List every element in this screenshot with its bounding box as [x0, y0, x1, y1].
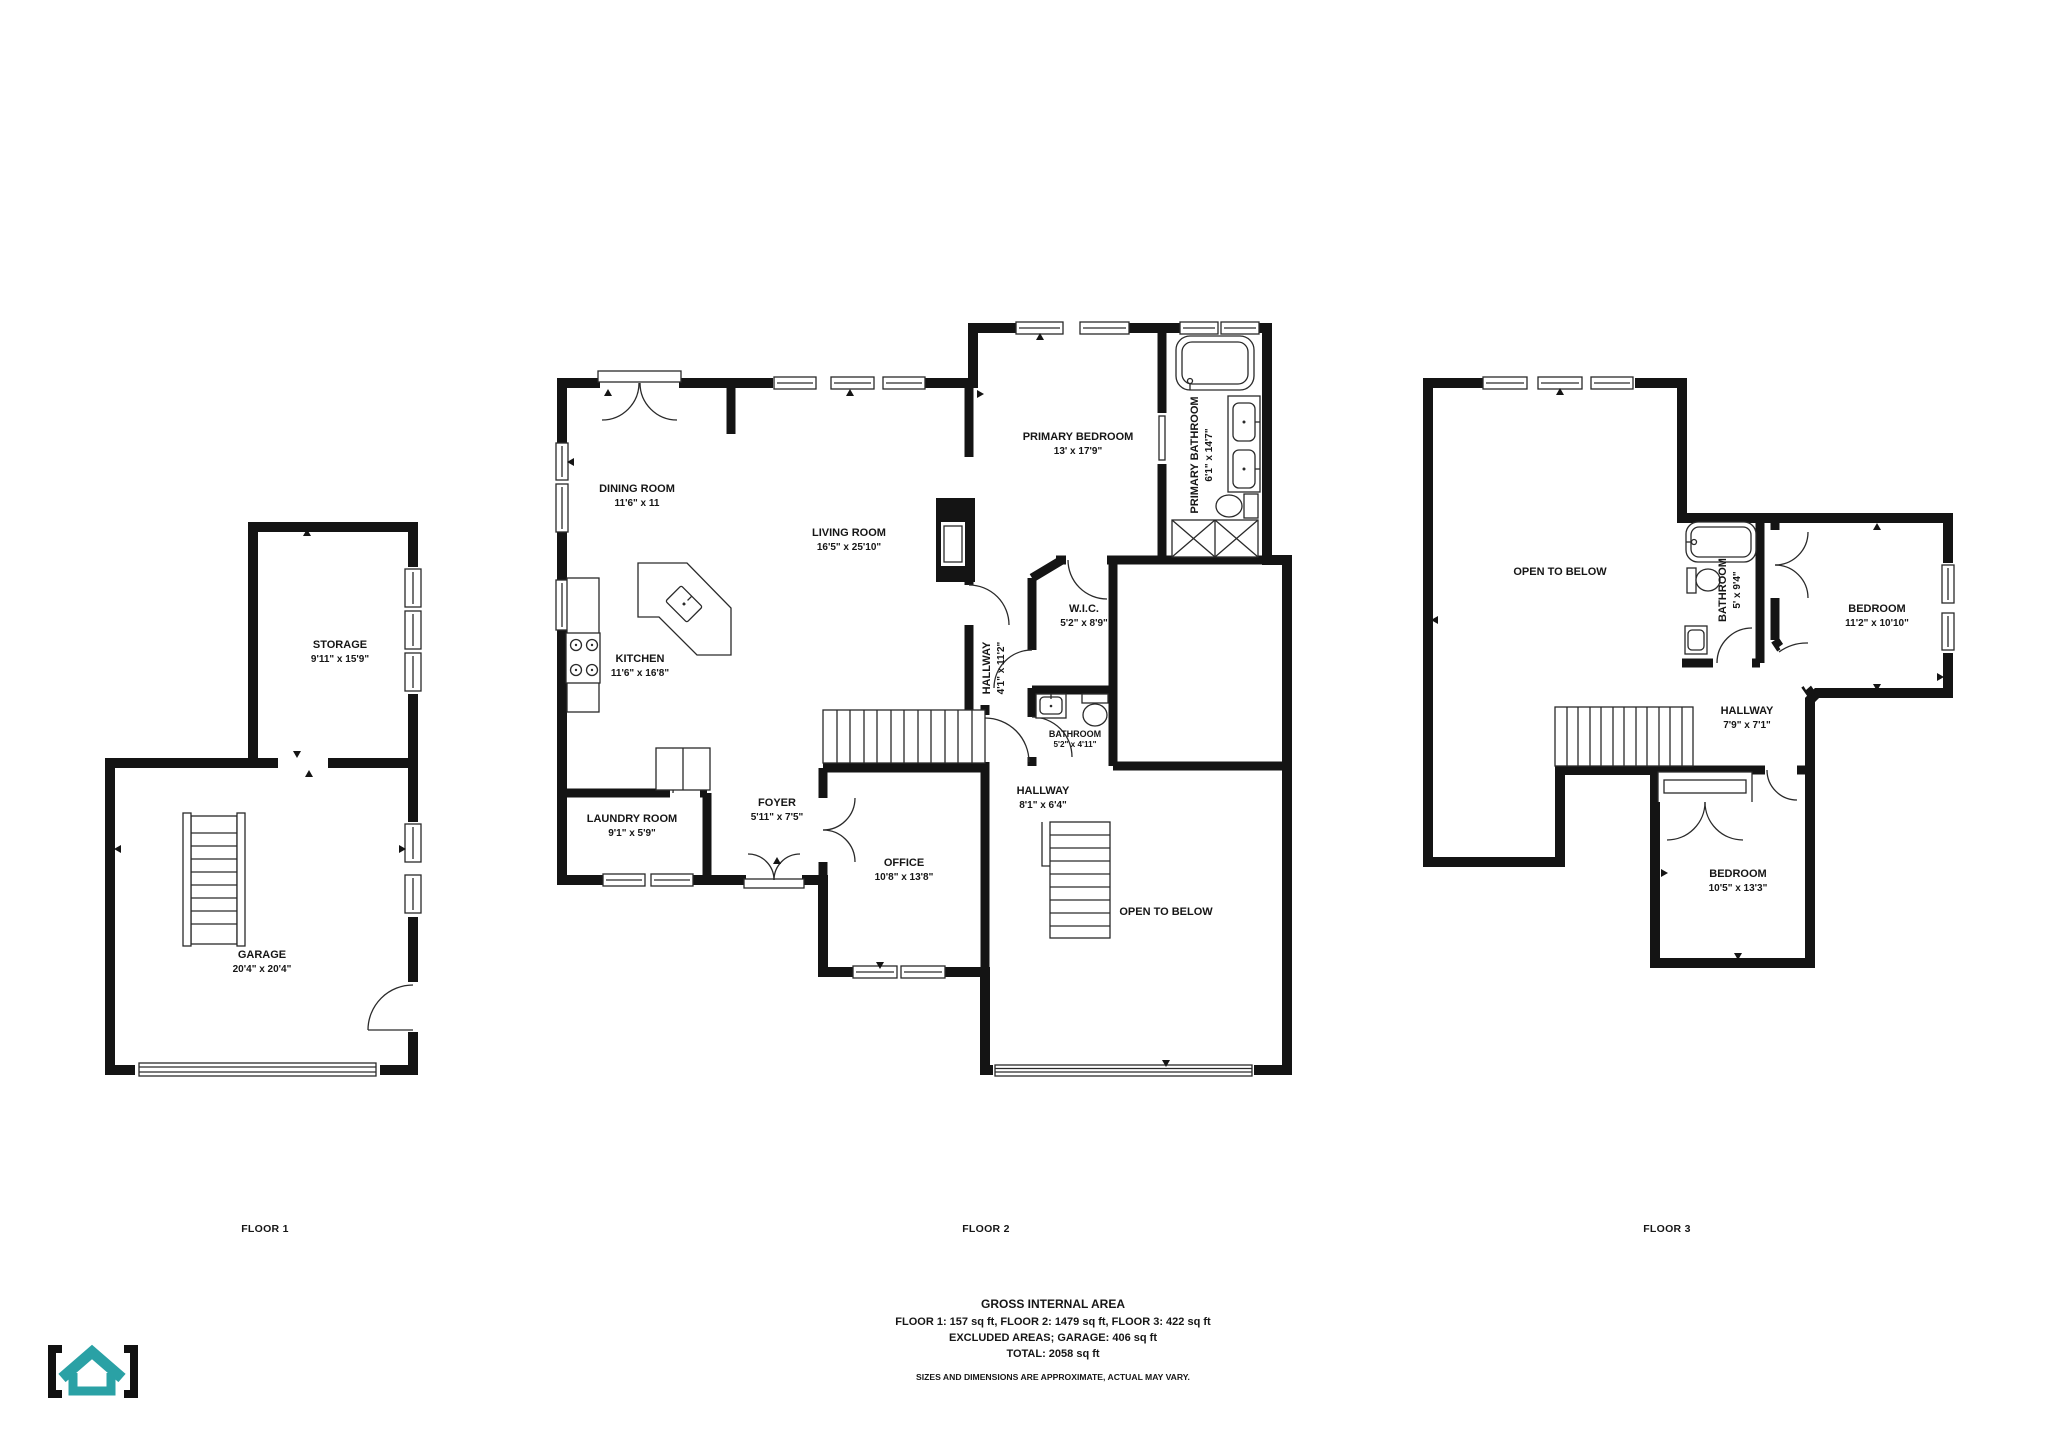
floor-plan-svg: STORAGE 9'11" x 15'9" GARAGE 20'4" x 20'…	[0, 0, 2048, 1448]
floor2-stairs-down	[1042, 822, 1110, 938]
floor1-caption: FLOOR 1	[241, 1223, 289, 1235]
floor3-plan: OPEN TO BELOW BATHROOM 5' x 9'4" BEDROOM…	[1428, 377, 1954, 963]
area-summary: GROSS INTERNAL AREA FLOOR 1: 157 sq ft, …	[895, 1297, 1211, 1382]
bathroom-toilet	[1082, 694, 1108, 726]
primary-toilet	[1216, 494, 1258, 518]
hallway2-dims: 8'1" x 6'4"	[1019, 800, 1067, 811]
open-below-f2-label: OPEN TO BELOW	[1119, 906, 1213, 918]
bathroom2-label: BATHROOM	[1049, 729, 1101, 739]
kitchen-label: KITCHEN	[616, 653, 665, 665]
bedroom1-label: BEDROOM	[1848, 603, 1905, 615]
floor3-bathtub	[1686, 522, 1756, 562]
laundry-dims: 9'1" x 5'9"	[608, 828, 656, 839]
living-room-label: LIVING ROOM	[812, 527, 886, 539]
floor1-plan: STORAGE 9'11" x 15'9" GARAGE 20'4" x 20'…	[110, 527, 421, 1078]
bathroom-sink	[1036, 694, 1066, 718]
office-label: OFFICE	[884, 857, 924, 869]
primary-vanity	[1228, 396, 1260, 492]
garage-walls	[110, 763, 413, 1070]
floor3-caption: FLOOR 3	[1643, 1223, 1691, 1235]
bedroom2-label: BEDROOM	[1709, 868, 1766, 880]
garage-dims: 20'4" x 20'4"	[233, 964, 292, 975]
dining-room-label: DINING ROOM	[599, 483, 675, 495]
fireplace	[936, 498, 975, 582]
gross-area-line1: FLOOR 1: 157 sq ft, FLOOR 2: 1479 sq ft,…	[895, 1316, 1211, 1328]
primary-bathroom-dims: 6'1" x 14'7"	[1204, 428, 1215, 481]
floor2-outer-walls	[562, 328, 1287, 1070]
laundry-label: LAUNDRY ROOM	[587, 813, 677, 825]
logo-house-body-icon	[73, 1373, 111, 1391]
gross-area-line3: TOTAL: 2058 sq ft	[1006, 1348, 1099, 1360]
bedroom1-dims: 11'2" x 10'10"	[1845, 618, 1909, 629]
hallway1-label: HALLWAY	[981, 641, 993, 694]
garage-door	[139, 1063, 376, 1076]
foyer-label: FOYER	[758, 797, 796, 809]
floor2-caption: FLOOR 2	[962, 1223, 1010, 1235]
cubicasa-logo	[48, 1345, 138, 1398]
wic-dims: 5'2" x 8'9"	[1060, 618, 1108, 629]
floor3-bathroom-dims: 5' x 9'4"	[1732, 571, 1743, 609]
primary-bedroom-label: PRIMARY BEDROOM	[1023, 431, 1134, 443]
floorplan-page: STORAGE 9'11" x 15'9" GARAGE 20'4" x 20'…	[0, 0, 2048, 1448]
hallway1-dims: 4'1" x 11'2"	[996, 641, 1007, 694]
logo-bracket-left-icon	[48, 1345, 62, 1398]
floor2-plan: DINING ROOM 11'6" x 11 LIVING ROOM 16'5"…	[556, 322, 1287, 1076]
kitchen-counter	[566, 578, 600, 712]
gross-area-title: GROSS INTERNAL AREA	[981, 1297, 1125, 1311]
logo-bracket-right-icon	[124, 1345, 138, 1398]
primary-bedroom-dims: 13' x 17'9"	[1054, 446, 1103, 457]
garage-stairs	[183, 813, 245, 946]
hallway2-label: HALLWAY	[1017, 785, 1070, 797]
floor3-bathroom-label: BATHROOM	[1717, 558, 1729, 622]
office-dims: 10'8" x 13'8"	[875, 872, 934, 883]
primary-bathtub	[1176, 336, 1254, 390]
floor3-hallway-label: HALLWAY	[1721, 705, 1774, 717]
open-below-f3-label: OPEN TO BELOW	[1513, 566, 1607, 578]
primary-bathroom-label: PRIMARY BATHROOM	[1189, 396, 1201, 513]
floor3-toilet	[1687, 568, 1720, 593]
primary-shower	[1172, 520, 1258, 557]
storage-label: STORAGE	[313, 639, 367, 651]
storage-windows	[405, 569, 421, 691]
foyer-dims: 5'11" x 7'5"	[751, 812, 804, 823]
floor3-stairs	[1555, 707, 1693, 766]
kitchen-fridge	[656, 748, 710, 790]
floor3-outer-walls	[1428, 383, 1948, 963]
bedroom2-dims: 10'5" x 13'3"	[1709, 883, 1768, 894]
floor3-sink	[1685, 626, 1707, 654]
gross-area-line2: EXCLUDED AREAS; GARAGE: 406 sq ft	[949, 1332, 1157, 1344]
floor2-stairs-up	[823, 710, 985, 763]
wic-label: W.I.C.	[1069, 603, 1099, 615]
living-room-dims: 16'5" x 25'10"	[817, 542, 882, 553]
garage-label: GARAGE	[238, 949, 286, 961]
disclaimer-text: SIZES AND DIMENSIONS ARE APPROXIMATE, AC…	[916, 1372, 1190, 1382]
storage-dims: 9'11" x 15'9"	[311, 654, 369, 665]
bathroom2-dims: 5'2" x 4'11"	[1053, 740, 1096, 749]
dining-room-dims: 11'6" x 11	[615, 498, 660, 509]
kitchen-dims: 11'6" x 16'8"	[611, 668, 669, 679]
floor3-hallway-dims: 7'9" x 7'1"	[1723, 720, 1771, 731]
